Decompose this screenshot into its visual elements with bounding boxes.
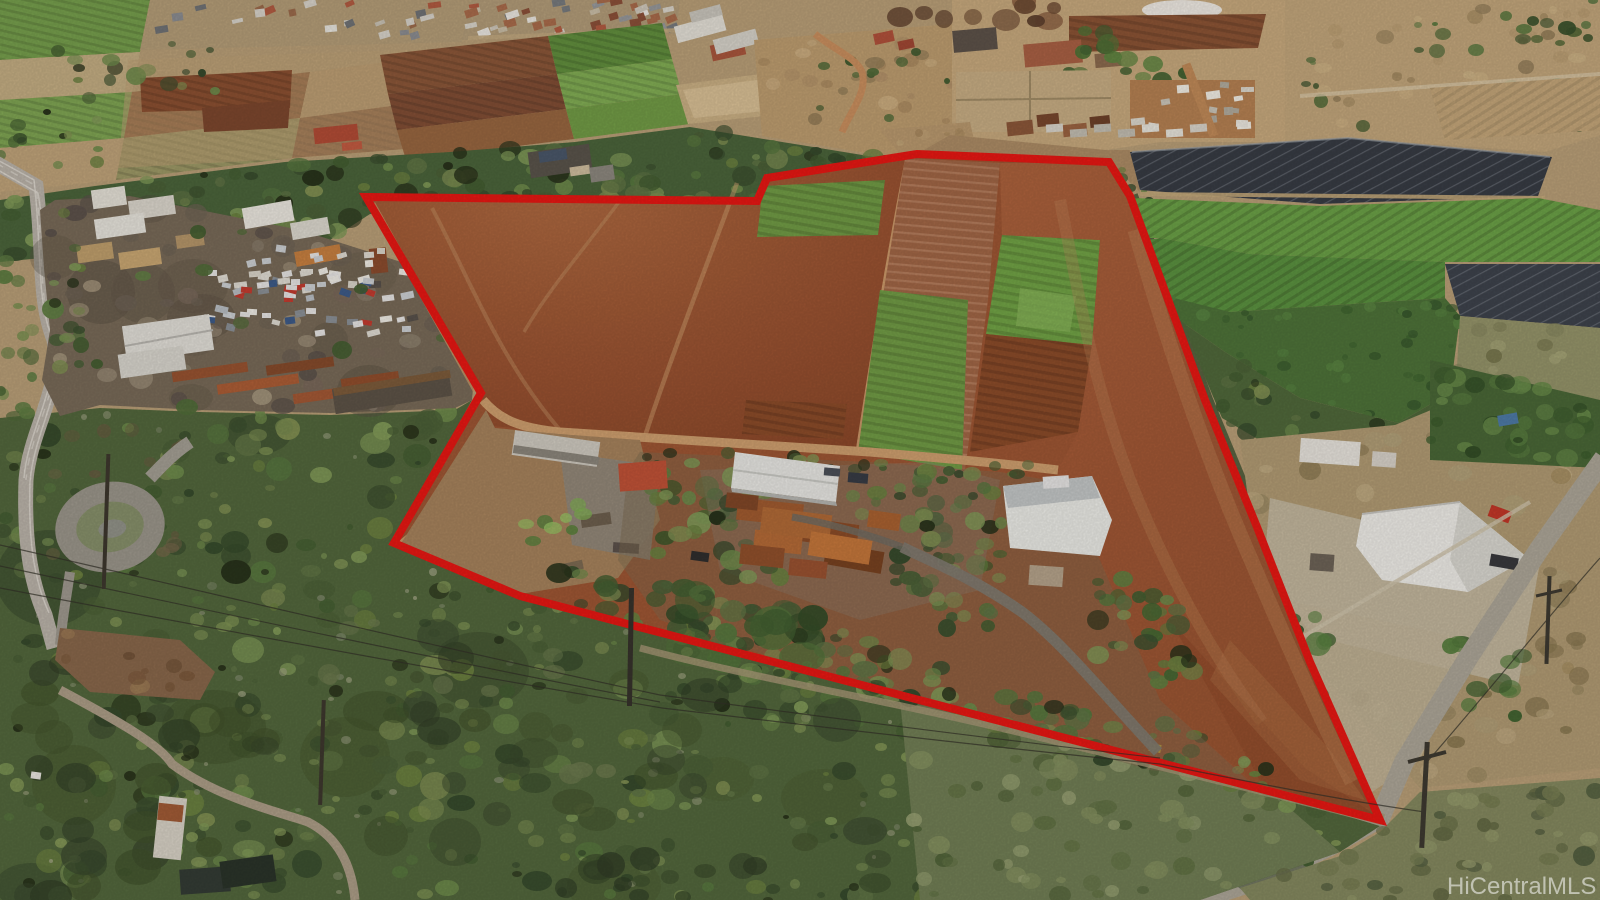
svg-text:HiCentralMLS: HiCentralMLS xyxy=(1447,873,1596,900)
